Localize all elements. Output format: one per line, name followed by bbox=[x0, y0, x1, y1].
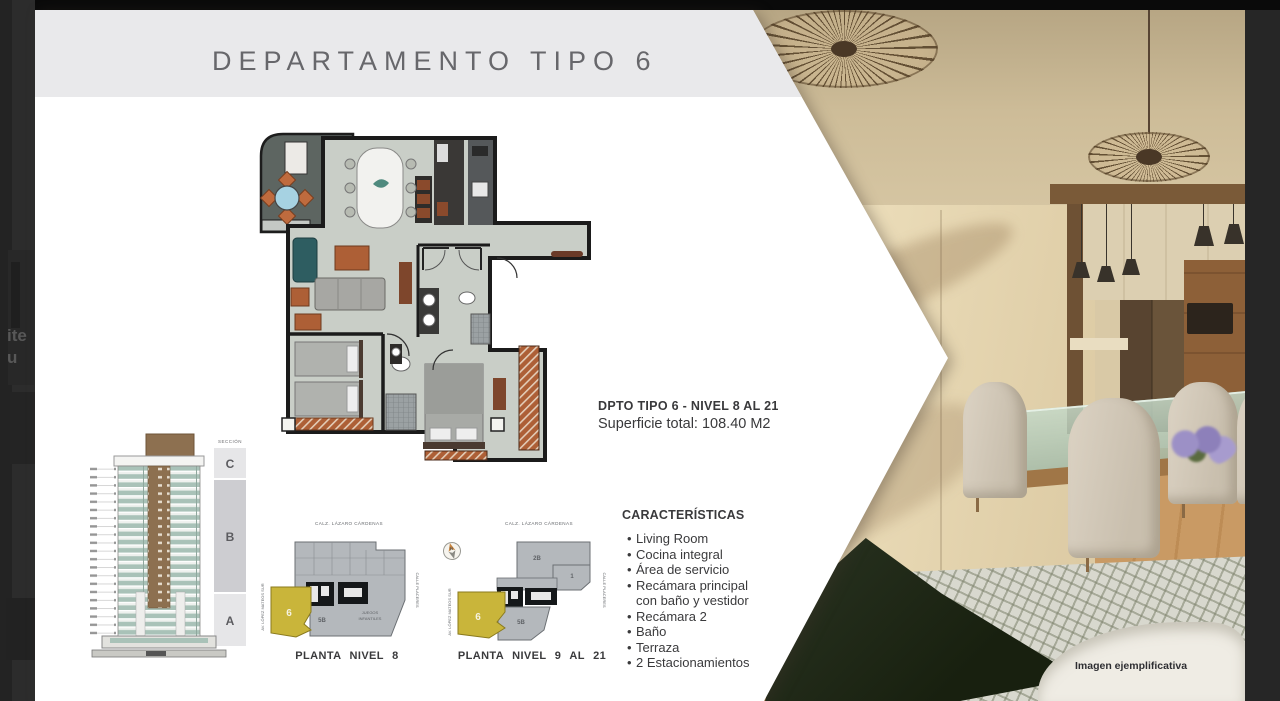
site-plan-nivel-9-21: CALZ. LÁZARO CÁRDENAS AV. LÓPEZ MATEOS S… bbox=[441, 512, 623, 672]
section-c-letter: C bbox=[226, 457, 235, 471]
tv-console bbox=[399, 262, 412, 304]
left-strip-bar bbox=[11, 262, 20, 328]
right-window-bar bbox=[1245, 10, 1280, 701]
pendant-lamp-stem bbox=[1148, 10, 1150, 134]
pendant-lamp-stem bbox=[1203, 204, 1204, 226]
section-b-letter: B bbox=[226, 530, 235, 544]
street-label-right: CALLE PLACERES bbox=[602, 572, 607, 607]
unit-2b-label: 2B bbox=[533, 556, 541, 562]
toilet bbox=[459, 292, 475, 304]
juegos-label: INFANTILES bbox=[359, 616, 382, 621]
occluded-text-fragment: u bbox=[7, 348, 17, 368]
entry-door bbox=[551, 251, 583, 257]
feature-item: Área de servicio bbox=[636, 562, 766, 578]
slide-chevron-wrap: DEPARTAMENTO TIPO 6 bbox=[35, 10, 995, 701]
occluded-text-fragment: ite bbox=[7, 326, 27, 346]
site-plan-nivel-8: CALZ. LÁZARO CÁRDENAS AV. LÓPEZ MATEOS S… bbox=[256, 512, 438, 672]
master-bed bbox=[423, 364, 485, 449]
page-title: DEPARTAMENTO TIPO 6 bbox=[212, 46, 658, 77]
plan8-caption: PLANTA NIVEL 8 bbox=[256, 650, 438, 662]
juegos-label: JUEGOS bbox=[362, 610, 379, 615]
plan-info: DPTO TIPO 6 - NIVEL 8 AL 21 Superficie t… bbox=[598, 399, 779, 432]
shower bbox=[386, 394, 416, 430]
master-terrace-deck bbox=[519, 346, 539, 450]
tower-core bbox=[148, 466, 170, 608]
microwave bbox=[1187, 303, 1233, 334]
left-strip-block bbox=[6, 598, 35, 660]
side-table bbox=[291, 288, 309, 306]
pendant-lamp-stem bbox=[1233, 204, 1234, 224]
top-window-bar bbox=[35, 0, 1280, 10]
bedroom2-closet bbox=[295, 418, 373, 430]
unit-5b-label: 5B bbox=[517, 620, 525, 626]
feature-item: Terraza bbox=[636, 640, 766, 656]
plan-info-area: Superficie total: 108.40 M2 bbox=[598, 416, 779, 432]
street-label-left: AV. LÓPEZ MATEOS SUR bbox=[447, 588, 452, 635]
sofa bbox=[315, 278, 385, 310]
kitchen-counter bbox=[1070, 338, 1128, 350]
unit-5b-label: 5B bbox=[318, 618, 326, 624]
building-elevation: SECCIÓN C B A bbox=[88, 432, 250, 677]
master-tv-console bbox=[493, 378, 506, 410]
street-label-left: AV. LÓPEZ MATEOS SUR bbox=[260, 583, 265, 630]
section-a-letter: A bbox=[226, 614, 235, 628]
unit-6-label: 6 bbox=[475, 612, 481, 623]
shower bbox=[471, 314, 490, 344]
slide-content-panel: DEPARTAMENTO TIPO 6 bbox=[35, 10, 955, 701]
apartment-floor-plan bbox=[253, 112, 601, 464]
street-label-top: CALZ. LÁZARO CÁRDENAS bbox=[505, 520, 573, 526]
floor-labels bbox=[90, 466, 116, 636]
flower-vase bbox=[1163, 425, 1237, 467]
feature-item: Recámara 2 bbox=[636, 609, 766, 625]
site-plan-921-drawing: CALZ. LÁZARO CÁRDENAS AV. LÓPEZ MATEOS S… bbox=[441, 512, 623, 644]
wood-beam bbox=[1050, 184, 1245, 204]
feature-item: Baño bbox=[636, 624, 766, 640]
plan-info-title: DPTO TIPO 6 - NIVEL 8 AL 21 bbox=[598, 399, 779, 413]
accent-armchair bbox=[293, 238, 317, 282]
background-window-strip: ite u bbox=[0, 0, 35, 701]
features-heading: CARACTERÍSTICAS bbox=[622, 508, 772, 522]
feature-item: Recámara principal con baño y vestidor bbox=[636, 578, 766, 609]
pendant-lamp-stem bbox=[1106, 204, 1107, 266]
pendant-lamp-stem bbox=[1131, 204, 1132, 259]
feature-item: 2 Estacionamientos bbox=[636, 655, 766, 671]
street-label-right: CALLE PLACERES bbox=[415, 572, 420, 607]
crown-slab bbox=[114, 456, 204, 466]
rooftop bbox=[146, 434, 194, 458]
compass-icon: N bbox=[442, 541, 463, 562]
features-list: CARACTERÍSTICAS Living Room Cocina integ… bbox=[622, 508, 772, 671]
brochure-page: ite u bbox=[0, 0, 1280, 701]
feature-item: Living Room bbox=[636, 531, 766, 547]
site-plan-8-drawing: CALZ. LÁZARO CÁRDENAS AV. LÓPEZ MATEOS S… bbox=[256, 512, 438, 644]
unit-6-label: 6 bbox=[286, 608, 292, 619]
fan-pendant-lamp bbox=[1088, 132, 1210, 182]
plan921-caption: PLANTA NIVEL 9 AL 21 bbox=[441, 650, 623, 662]
seccion-label: SECCIÓN bbox=[218, 438, 242, 444]
left-strip-block bbox=[10, 392, 35, 464]
photo-watermark: Imagen ejemplificativa bbox=[1075, 660, 1187, 672]
feature-item: Cocina integral bbox=[636, 547, 766, 563]
dining-chair bbox=[1068, 398, 1160, 558]
coffee-table bbox=[335, 246, 369, 270]
header-band: DEPARTAMENTO TIPO 6 bbox=[35, 10, 955, 97]
street-label-top: CALZ. LÁZARO CÁRDENAS bbox=[315, 520, 383, 526]
pendant-lamp-stem bbox=[1081, 204, 1082, 262]
desk bbox=[295, 314, 321, 330]
unit-6-highlight bbox=[458, 592, 505, 638]
